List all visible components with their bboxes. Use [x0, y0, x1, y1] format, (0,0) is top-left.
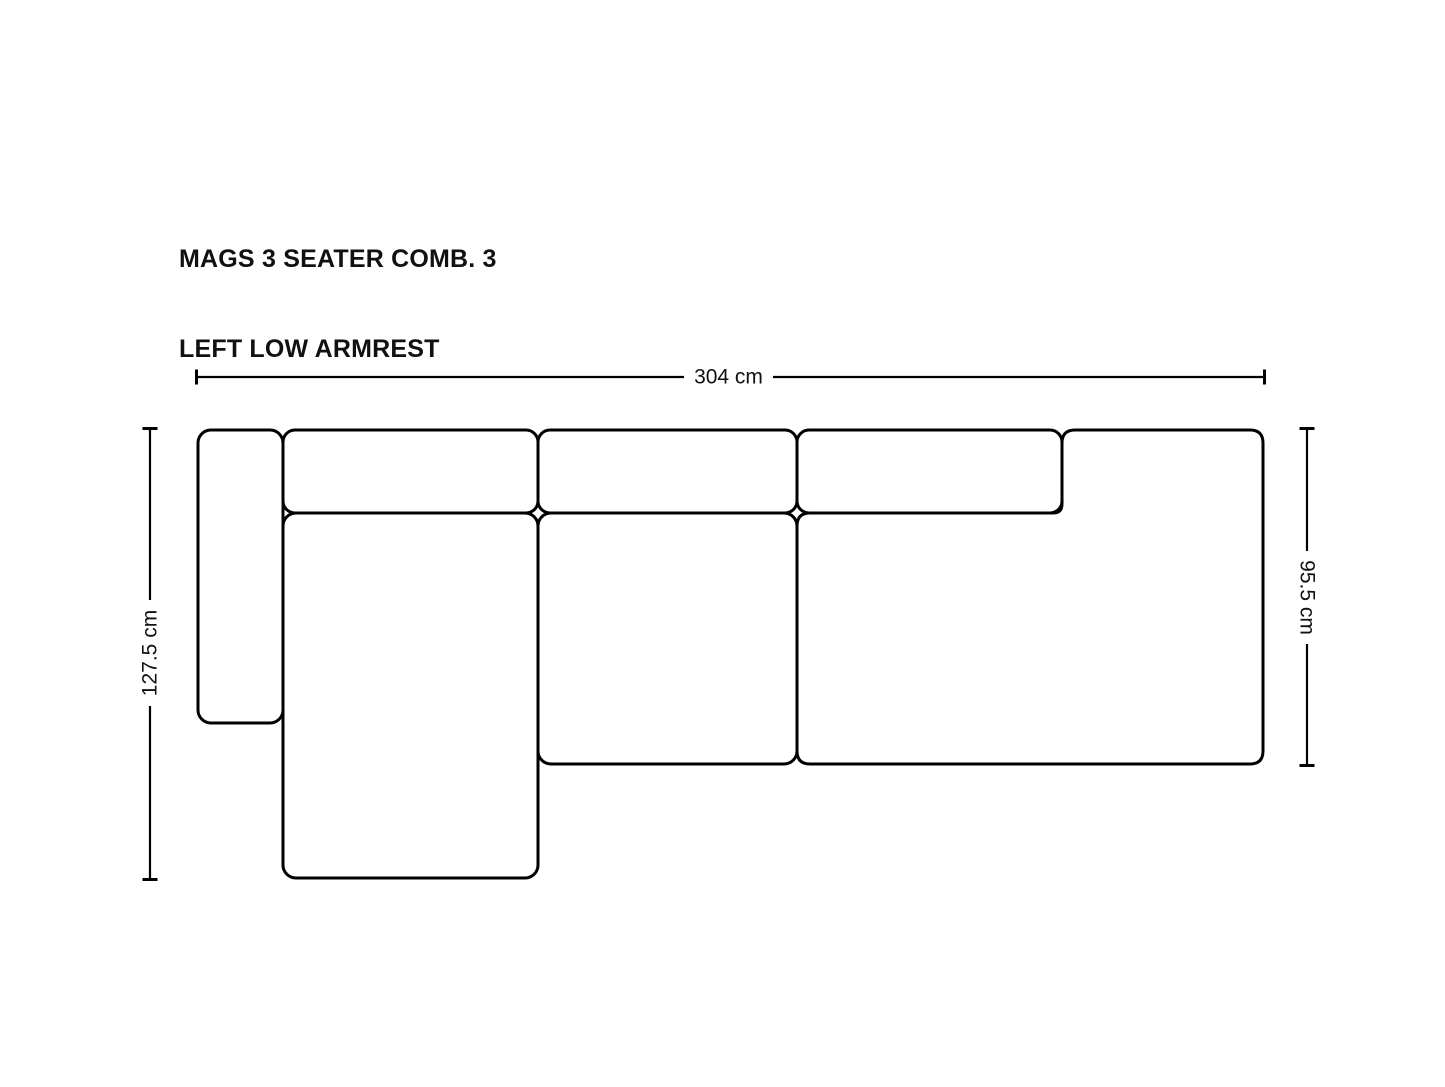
body-depth-label: 95.5 cm — [1296, 560, 1319, 635]
back-cushion-right — [797, 430, 1062, 513]
middle-seat-module — [538, 513, 797, 764]
sofa-outline — [198, 430, 1263, 878]
width-dimension: 304 cm — [197, 366, 1265, 389]
sofa-dimension-diagram: 304 cm 127.5 cm 95.5 cm — [0, 0, 1445, 1087]
total-depth-dimension: 127.5 cm — [139, 429, 162, 880]
back-cushion-middle — [538, 430, 797, 513]
body-depth-dimension: 95.5 cm — [1296, 429, 1319, 766]
chaise-longue-seat-module — [283, 513, 538, 878]
total-depth-label: 127.5 cm — [139, 610, 162, 696]
width-dimension-label: 304 cm — [694, 366, 763, 389]
back-cushion-left — [283, 430, 538, 513]
left-low-armrest-module — [198, 430, 283, 723]
product-dimension-diagram-page: MAGS 3 SEATER COMB. 3 LEFT LOW ARMREST 3… — [0, 0, 1445, 1087]
